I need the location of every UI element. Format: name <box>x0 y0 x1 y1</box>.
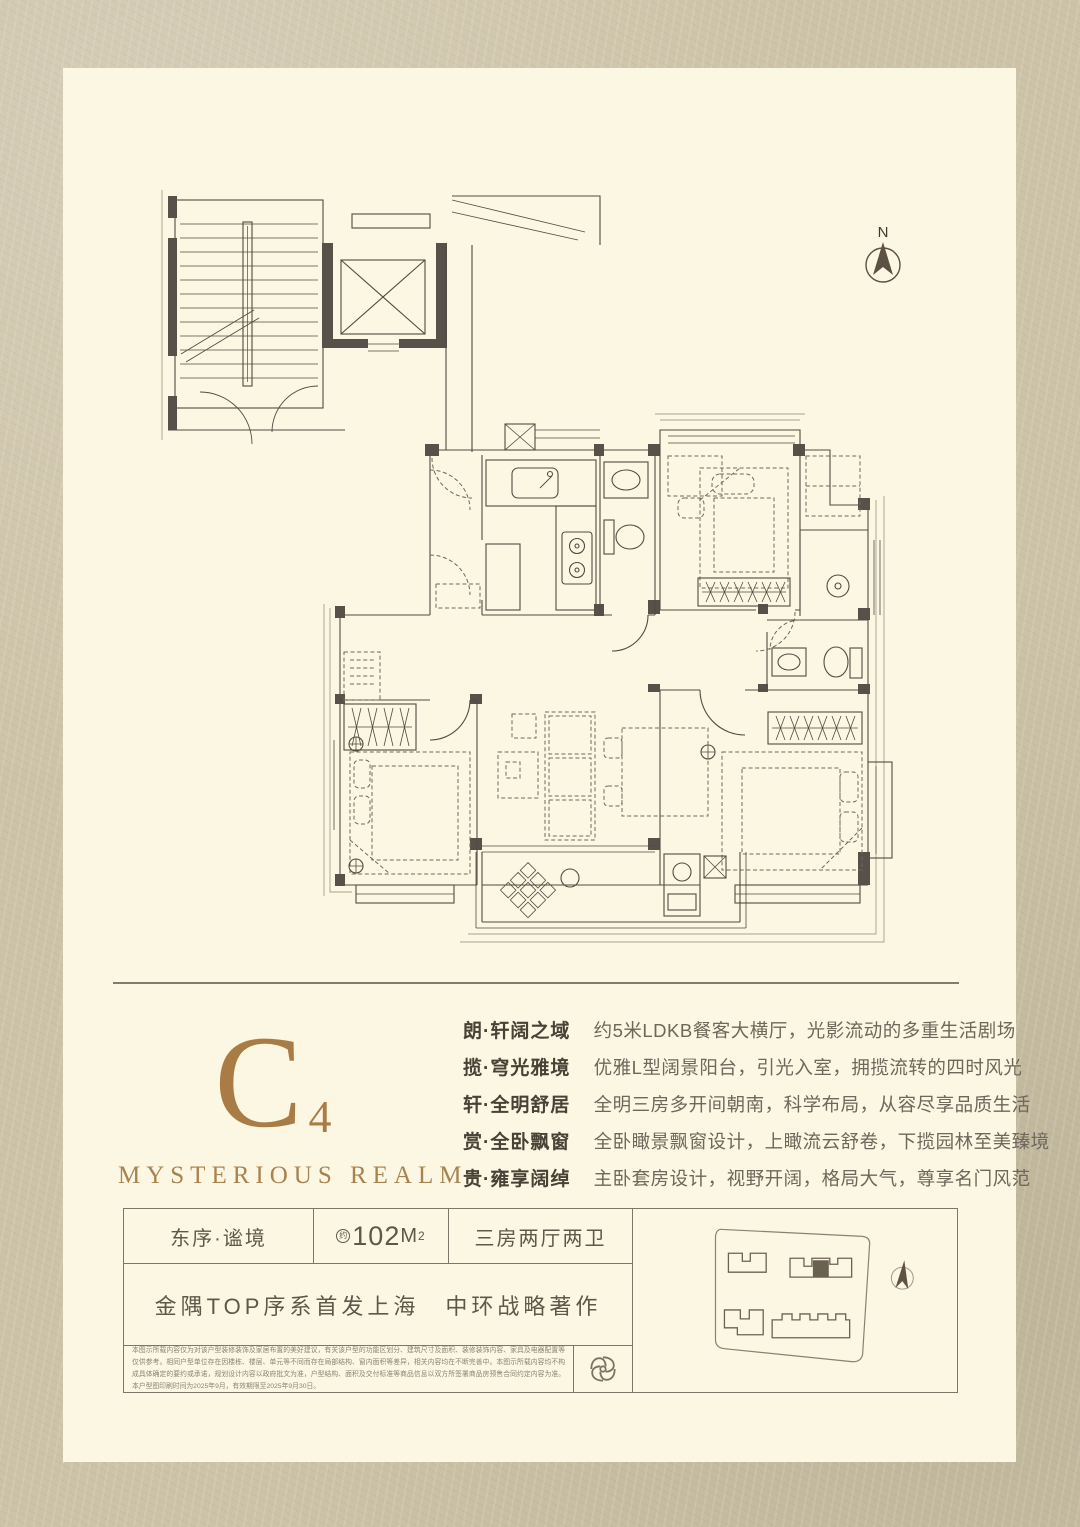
site-building-3 <box>724 1310 763 1335</box>
bedroom-1 <box>340 652 477 885</box>
stairwell <box>168 196 345 444</box>
compass-icon: N <box>853 222 913 292</box>
floor-plan <box>150 190 950 950</box>
bathroom-upper <box>800 456 868 616</box>
feature-list: 朗·轩阔之域 约5米LDKB餐客大横厅，光影流动的多重生活剧场 揽·穹光雅境 优… <box>463 1020 1008 1205</box>
unit-area-cell: 约102M2 <box>313 1208 449 1264</box>
unit-subtitle-en: MYSTERIOUS REALM <box>118 1162 428 1190</box>
site-map-cell <box>632 1208 958 1393</box>
floorplan-poster: { "compass": { "north_label": "N" }, "he… <box>0 0 1080 1527</box>
bedroom-master <box>660 690 862 885</box>
kitchen <box>482 455 600 615</box>
site-highlight-unit <box>813 1260 829 1277</box>
logo-cell <box>573 1345 633 1393</box>
feature-desc: 主卧套房设计，视野开阔，格局大气，尊享名门风范 <box>594 1168 1031 1189</box>
slogan-cell: 金隅TOP序系首发上海 中环战略著作 <box>123 1263 633 1346</box>
unit-layout-cell: 三房两厅两卫 <box>448 1208 633 1264</box>
info-table: 东序·谧境 约102M2 三房两厅两卫 金隅TOP序系首发上海 中环战略著作 本… <box>123 1208 958 1393</box>
feature-desc: 优雅L型阔景阳台，引光入室，拥揽流转的四时风光 <box>594 1057 1023 1078</box>
area-unit: M <box>400 1225 418 1248</box>
site-map <box>633 1208 957 1393</box>
bathroom-guest <box>600 455 655 651</box>
feature-row: 朗·轩阔之域 约5米LDKB餐客大横厅，光影流动的多重生活剧场 <box>463 1020 1008 1042</box>
feature-row: 贵·雍享阔绰 主卧套房设计，视野开阔，格局大气，尊享名门风范 <box>463 1168 1008 1190</box>
exterior-contours <box>162 190 884 942</box>
feature-row: 轩·全明舒居 全明三房多开间朝南，科学布局，从容尽享品质生活 <box>463 1094 1008 1116</box>
poster-card: N C4 MYSTERIOUS REALM 朗·轩阔之域 约5米LDKB餐客大横… <box>63 68 1016 1462</box>
unit-name-cell: 东序·谧境 <box>123 1208 314 1264</box>
logo-knot-icon <box>585 1351 621 1387</box>
feature-row: 揽·穹光雅境 优雅L型阔景阳台，引光入室，拥揽流转的四时风光 <box>463 1057 1008 1079</box>
balcony <box>476 852 746 928</box>
unit-headline: C4 MYSTERIOUS REALM <box>118 1016 428 1190</box>
area-value: 102 <box>352 1221 400 1252</box>
living-dining <box>482 712 708 852</box>
unit-code: C4 <box>118 1016 428 1148</box>
elevator <box>322 196 600 452</box>
approx-circle-icon: 约 <box>336 1229 350 1243</box>
feature-desc: 约5米LDKB餐客大横厅，光影流动的多重生活剧场 <box>594 1020 1016 1041</box>
site-boundary <box>715 1229 869 1361</box>
feature-label: 赏·全卧飘窗 <box>463 1132 570 1153</box>
feature-label: 贵·雍享阔绰 <box>463 1169 570 1190</box>
site-building-1 <box>728 1253 766 1272</box>
feature-label: 轩·全明舒居 <box>463 1095 570 1116</box>
feature-row: 赏·全卧飘窗 全卧瞰景飘窗设计，上瞰流云舒卷，下揽园林至美臻境 <box>463 1131 1008 1153</box>
site-building-4 <box>772 1314 850 1338</box>
feature-desc: 全明三房多开间朝南，科学布局，从容尽享品质生活 <box>594 1094 1031 1115</box>
disclaimer-cell: 本图示所载内容仅为对该户型装修装饰及家居布置的美好建议，有关该户型的功能区划分、… <box>123 1345 574 1393</box>
feature-desc: 全卧瞰景飘窗设计，上瞰流云舒卷，下揽园林至美臻境 <box>594 1131 1050 1152</box>
entry-hall <box>430 458 480 608</box>
unit-letter: C <box>214 1008 302 1155</box>
unit-number: 4 <box>309 1091 332 1142</box>
bedroom-2 <box>660 450 800 651</box>
unit-walls <box>334 424 892 903</box>
feature-label: 揽·穹光雅境 <box>463 1058 570 1079</box>
compass-n-label: N <box>878 224 889 241</box>
balcony-rug <box>500 863 555 918</box>
site-compass-icon <box>891 1260 913 1289</box>
feature-label: 朗·轩阔之域 <box>463 1021 570 1042</box>
area-superscript: 2 <box>418 1229 426 1243</box>
bathroom-master <box>767 620 868 690</box>
disclaimer-text: 本图示所载内容仅为对该户型装修装饰及家居布置的美好建议，有关该户型的功能区划分、… <box>124 1342 573 1396</box>
section-divider <box>113 982 959 984</box>
